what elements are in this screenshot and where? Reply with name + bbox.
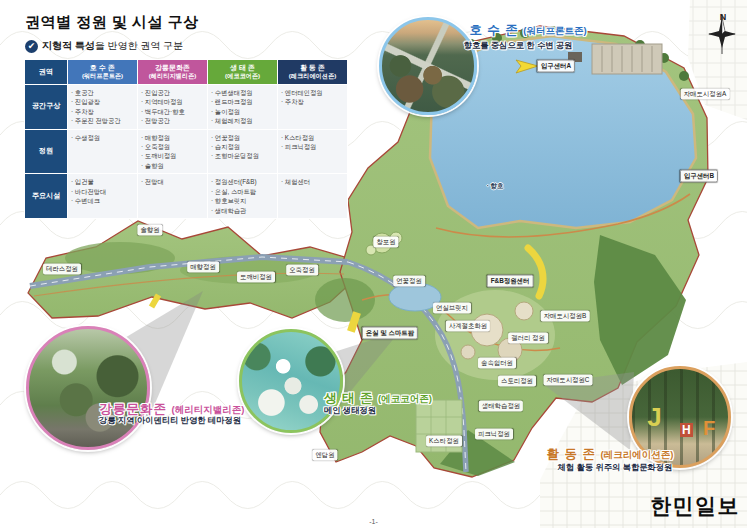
newspaper-logo: 한민일보: [650, 492, 740, 520]
letter-sculpture-j: J: [647, 402, 661, 433]
zone-cell: · 수변생태정원· 랜드마크정원· 놀이정원· 체험레저정원: [208, 85, 277, 129]
zone-header: 활 동 존(레크리에이션존): [278, 60, 347, 84]
zone-header: 강릉문화존(헤리티지밸리존): [138, 60, 207, 84]
zone-cell: · 입건물· 바다전망대· 수변데크: [68, 174, 137, 218]
master-plan-page: 권역별 정원 및 시설 구상 ✔ 지형적 특성을 반영한 권역 구분 N 권역호…: [0, 0, 747, 528]
row-label: 정원: [25, 130, 67, 174]
map-label: 생태학습정원: [479, 401, 523, 412]
map-label: 창포원: [373, 237, 398, 248]
activity-zone-title: 활 동 존 (레크리에이션존): [535, 444, 685, 463]
map-label: 스토리정원: [498, 376, 536, 387]
map-label: K스타정원: [426, 436, 462, 447]
compass-label: N: [704, 6, 742, 24]
zone-cell: · K스타정원· 피크닉정원: [278, 130, 347, 174]
map-label: F&B정원센터: [487, 275, 534, 288]
zone-cell: · 호공간· 진입광장· 주차장· 주문진 전망공간: [68, 85, 137, 129]
map-label: 연실브릿지: [433, 303, 471, 314]
map-label: 입구센터A: [537, 60, 575, 73]
lake-zone-title: 호 수 존 (워터프론트존): [438, 20, 618, 39]
row-label: 주요시설: [25, 174, 67, 218]
table-corner-label: 권역: [25, 60, 67, 84]
zone-table: 권역호 수 존(워터프론트존)강릉문화존(헤리티지밸리존)생 태 존(에코코어존…: [25, 60, 347, 218]
culture-zone-desc: 강릉 지역 아이덴티티 반영한 테마정원: [85, 415, 255, 426]
map-label: 오죽정원: [286, 265, 318, 276]
map-label: 숲속쉼터원: [478, 358, 516, 369]
map-label: 자매도시정원C: [544, 375, 593, 386]
map-label: 엔담원: [312, 450, 337, 461]
page-number: -1-: [0, 518, 747, 525]
zone-cell: · 체험센터: [278, 174, 347, 218]
page-title: 권역별 정원 및 시설 구상: [25, 13, 199, 32]
map-label: 입구센터B: [680, 170, 718, 183]
map-label: 솔향원: [137, 225, 162, 236]
map-label: 테라스정원: [43, 264, 81, 275]
zone-cell: · 연꽃정원· 습지정원· 조형마운딩정원: [208, 130, 277, 174]
zone-cell: · 수생정원: [68, 130, 137, 174]
activity-zone-desc: 체험 활동 위주의 복합문화정원: [540, 462, 690, 473]
check-icon: ✔: [25, 40, 38, 53]
zone-header: 호 수 존(워터프론트존): [68, 60, 137, 84]
map-label: 온실 및 스마트팜: [362, 327, 418, 340]
map-label: 자매도시정원A: [681, 89, 730, 100]
row-label: 공간구상: [25, 85, 67, 129]
page-subtitle: ✔ 지형적 특성을 반영한 권역 구분: [25, 39, 183, 53]
zone-cell: · 엔터테인정원· 주차장: [278, 85, 347, 129]
map-label: 사계절초화원: [446, 321, 490, 332]
lake-zone-desc: 향호를 중심으로 한 수변 공원: [428, 40, 608, 51]
zone-header: 생 태 존(에코코어존): [208, 60, 277, 84]
eco-zone-desc: 메인 생태정원: [300, 405, 400, 416]
letter-sculpture-h: H: [680, 423, 693, 437]
zone-cell: · 정원센터(F&B)· 온실, 스마트팜· 향호브릿지· 생태학습관: [208, 174, 277, 218]
map-label: 매향정원: [187, 262, 219, 273]
zone-cell: · 매향정원· 오죽정원· 도깨비정원· 솔향원: [138, 130, 207, 174]
letter-sculpture-f: F: [703, 417, 715, 440]
map-label: 연꽃정원: [393, 276, 425, 287]
map-label: 갤러리 정원: [508, 333, 548, 344]
map-label: 자매도시정원B: [541, 311, 590, 322]
map-label: 도깨비정원: [237, 272, 275, 283]
map-label: · 향호: [484, 181, 507, 192]
zone-cell: · 전망대: [138, 174, 207, 218]
zone-cell: · 진입공간· 지역테마정원· 백두대간·향호· 전망공간: [138, 85, 207, 129]
culture-zone-photo: [26, 326, 150, 450]
map-label: 피크닉정원: [475, 429, 513, 440]
